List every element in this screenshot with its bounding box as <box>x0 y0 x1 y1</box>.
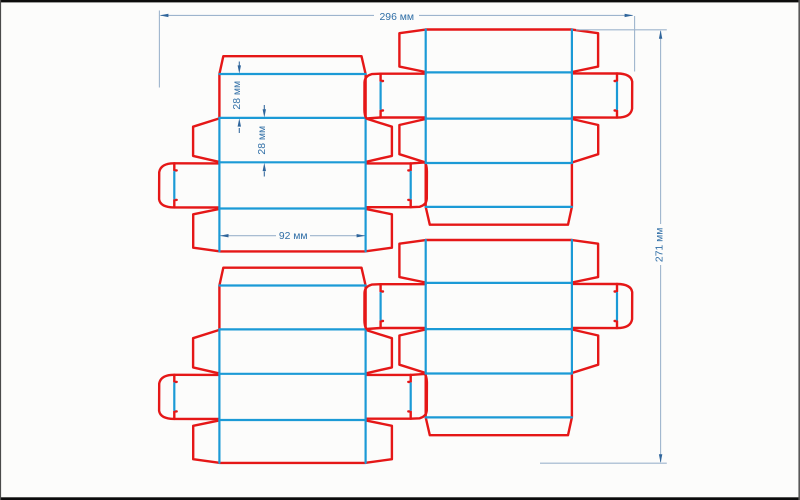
svg-text:28 мм: 28 мм <box>232 81 243 110</box>
svg-text:271 мм: 271 мм <box>654 228 665 263</box>
svg-text:28 мм: 28 мм <box>257 126 268 155</box>
svg-text:296 мм: 296 мм <box>380 12 415 23</box>
svg-text:92 мм: 92 мм <box>279 231 308 242</box>
